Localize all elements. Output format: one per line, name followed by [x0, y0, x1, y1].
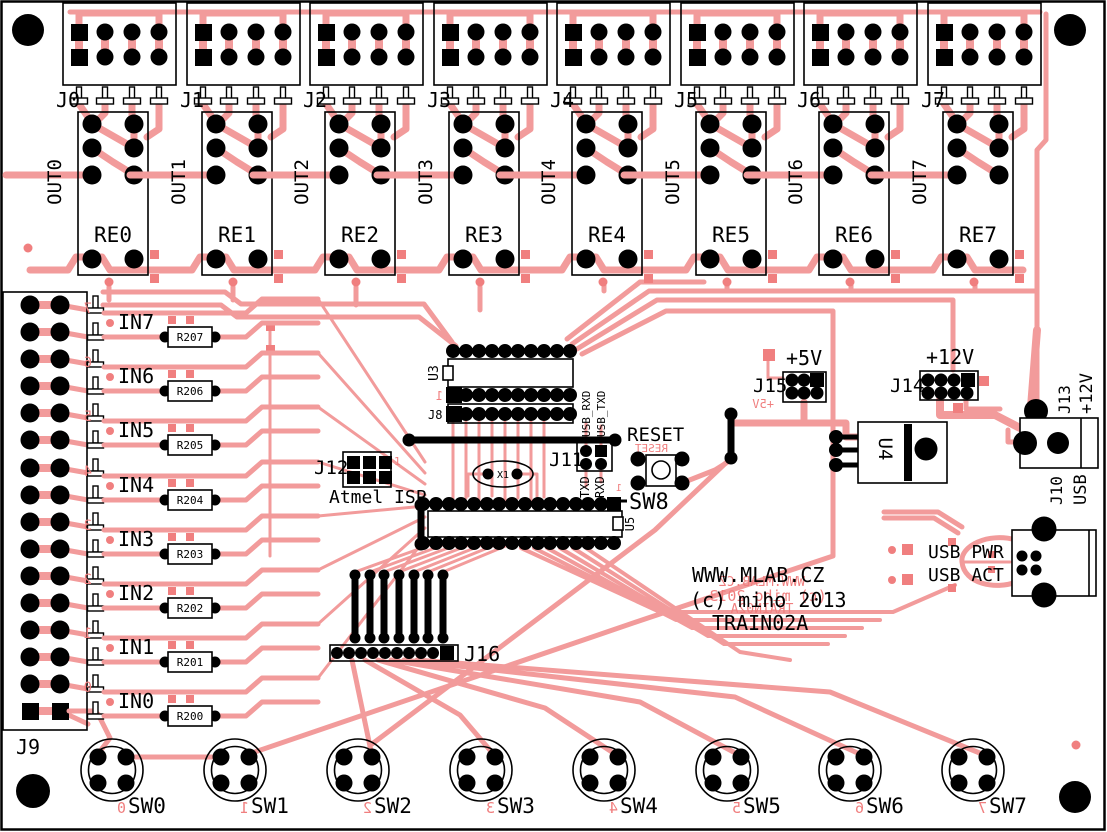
connector-label: J4 [550, 88, 574, 112]
name-label: TRAIN02A [712, 611, 808, 635]
ic-u5: U5 [416, 497, 637, 550]
ic-u3: U3 1 [427, 344, 577, 403]
copyright-label: (c) miho 2013 [690, 588, 847, 612]
switch-digit: 1 [240, 799, 249, 817]
relay-label: RE1 [218, 223, 256, 247]
connector-label: J1 [180, 88, 204, 112]
input-label: IN3 [118, 527, 154, 551]
relay-label: RE6 [835, 223, 873, 247]
output-label: OUT5 [662, 159, 684, 205]
resistor-label: R204 [177, 494, 204, 507]
silk-digit: 0 [84, 680, 92, 696]
resistor-label: R205 [177, 439, 204, 452]
switch-label: SW4 [620, 794, 658, 818]
switch-digit: 6 [855, 799, 864, 817]
output-label: OUT0 [44, 159, 66, 205]
resistor-label: R203 [177, 548, 204, 561]
txd-label: TXD [578, 476, 592, 498]
relay-label: RE3 [465, 223, 503, 247]
j14-label: J14 [890, 375, 924, 397]
header-j15: +5V J15 +5V [752, 346, 826, 411]
switch-digit: 3 [486, 799, 495, 817]
j12-label: J12 [314, 457, 348, 479]
switch-digit: 7 [978, 799, 987, 817]
usb-txd-label: USB_TXD [595, 391, 608, 437]
j10-type-label: USB [1071, 474, 1091, 505]
u3-pin1: 1 [436, 389, 443, 403]
rxd-label: RXD [593, 476, 607, 498]
j13-voltage-label: +12V [1077, 373, 1097, 414]
usb-pwr-label: USB PWR [928, 542, 1004, 563]
output-label: OUT1 [168, 159, 190, 205]
u3-label: U3 [427, 365, 442, 381]
sw8-label: SW8 [629, 490, 669, 515]
switch-digit: 4 [609, 799, 618, 817]
switch-digit: 5 [732, 799, 741, 817]
input-label: IN5 [118, 418, 154, 442]
sw8-pin1: 1 [616, 483, 622, 494]
silk-digit: 1 [84, 626, 92, 642]
silk-digit: 7 [84, 301, 92, 317]
silk-digit: 6 [84, 355, 92, 371]
pcb-layout: J0 RE0 OUT0 J1 RE1 OUT1 J2 RE2 OUT2 J3 R… [0, 0, 1107, 832]
input-label: IN1 [118, 635, 154, 659]
switch-digit: 0 [117, 799, 126, 817]
resistor-label: R206 [177, 385, 204, 398]
site-label: WWW.MLAB.CZ [692, 563, 824, 587]
output-label: OUT4 [538, 159, 560, 205]
silk-digit: 5 [84, 409, 92, 425]
usb-act-label: USB ACT [928, 565, 1004, 586]
j12-pin1: 1 [394, 455, 401, 468]
usb-rxd-label: USB_RXD [580, 391, 593, 437]
switch-label: SW2 [374, 794, 412, 818]
relay-label: RE4 [588, 223, 626, 247]
plus12-label: +12V [926, 345, 974, 369]
resistor-label: R200 [177, 710, 204, 723]
j15-label: J15 [753, 375, 787, 397]
connector-label: J7 [921, 88, 945, 112]
silk-digit: 4 [84, 464, 92, 480]
j9-label: J9 [16, 735, 40, 759]
j10-label: J10 [1047, 476, 1066, 505]
j16-label: J16 [464, 642, 500, 666]
output-label: OUT7 [909, 159, 931, 205]
output-label: OUT6 [785, 159, 807, 205]
switch-digit: 2 [363, 799, 372, 817]
plus5-label: +5V [786, 346, 822, 370]
relay-label: RE5 [712, 223, 750, 247]
connector-label: J6 [797, 88, 821, 112]
j13-label: J13 [1055, 385, 1074, 414]
switch-label: SW1 [251, 794, 289, 818]
j8-label: J8 [428, 408, 442, 422]
relay-label: RE7 [959, 223, 997, 247]
output-label: OUT2 [291, 159, 313, 205]
switch-label: SW7 [989, 794, 1027, 818]
j11-label: J11 [549, 449, 583, 471]
resistor-label: R201 [177, 656, 204, 669]
resistor-label: R202 [177, 602, 204, 615]
plus5-mirror: +5V [752, 397, 774, 411]
connector-label: J2 [303, 88, 327, 112]
silk-digit: 3 [84, 518, 92, 534]
resistor-label: R207 [177, 331, 204, 344]
silk-digit: 2 [84, 572, 92, 588]
input-label: IN2 [118, 581, 154, 605]
relay-label: RE2 [341, 223, 379, 247]
switch-label: SW5 [743, 794, 781, 818]
u4-label: U4 [874, 438, 896, 461]
switch-label: SW3 [497, 794, 535, 818]
connector-label: J0 [56, 88, 80, 112]
isp-label: Atmel ISP [329, 487, 427, 508]
switch-label: SW6 [866, 794, 904, 818]
x1-label: X1 [497, 470, 509, 481]
input-label: IN7 [118, 310, 154, 334]
switch-label: SW0 [128, 794, 166, 818]
input-label: IN6 [118, 364, 154, 388]
connector-label: J5 [674, 88, 698, 112]
relay-label: RE0 [94, 223, 132, 247]
connector-label: J3 [427, 88, 451, 112]
output-label: OUT3 [415, 159, 437, 205]
input-label: IN0 [118, 689, 154, 713]
u5-label: U5 [623, 517, 637, 531]
input-label: IN4 [118, 473, 154, 497]
pcb-board: J0 RE0 OUT0 J1 RE1 OUT1 J2 RE2 OUT2 J3 R… [0, 0, 1107, 832]
